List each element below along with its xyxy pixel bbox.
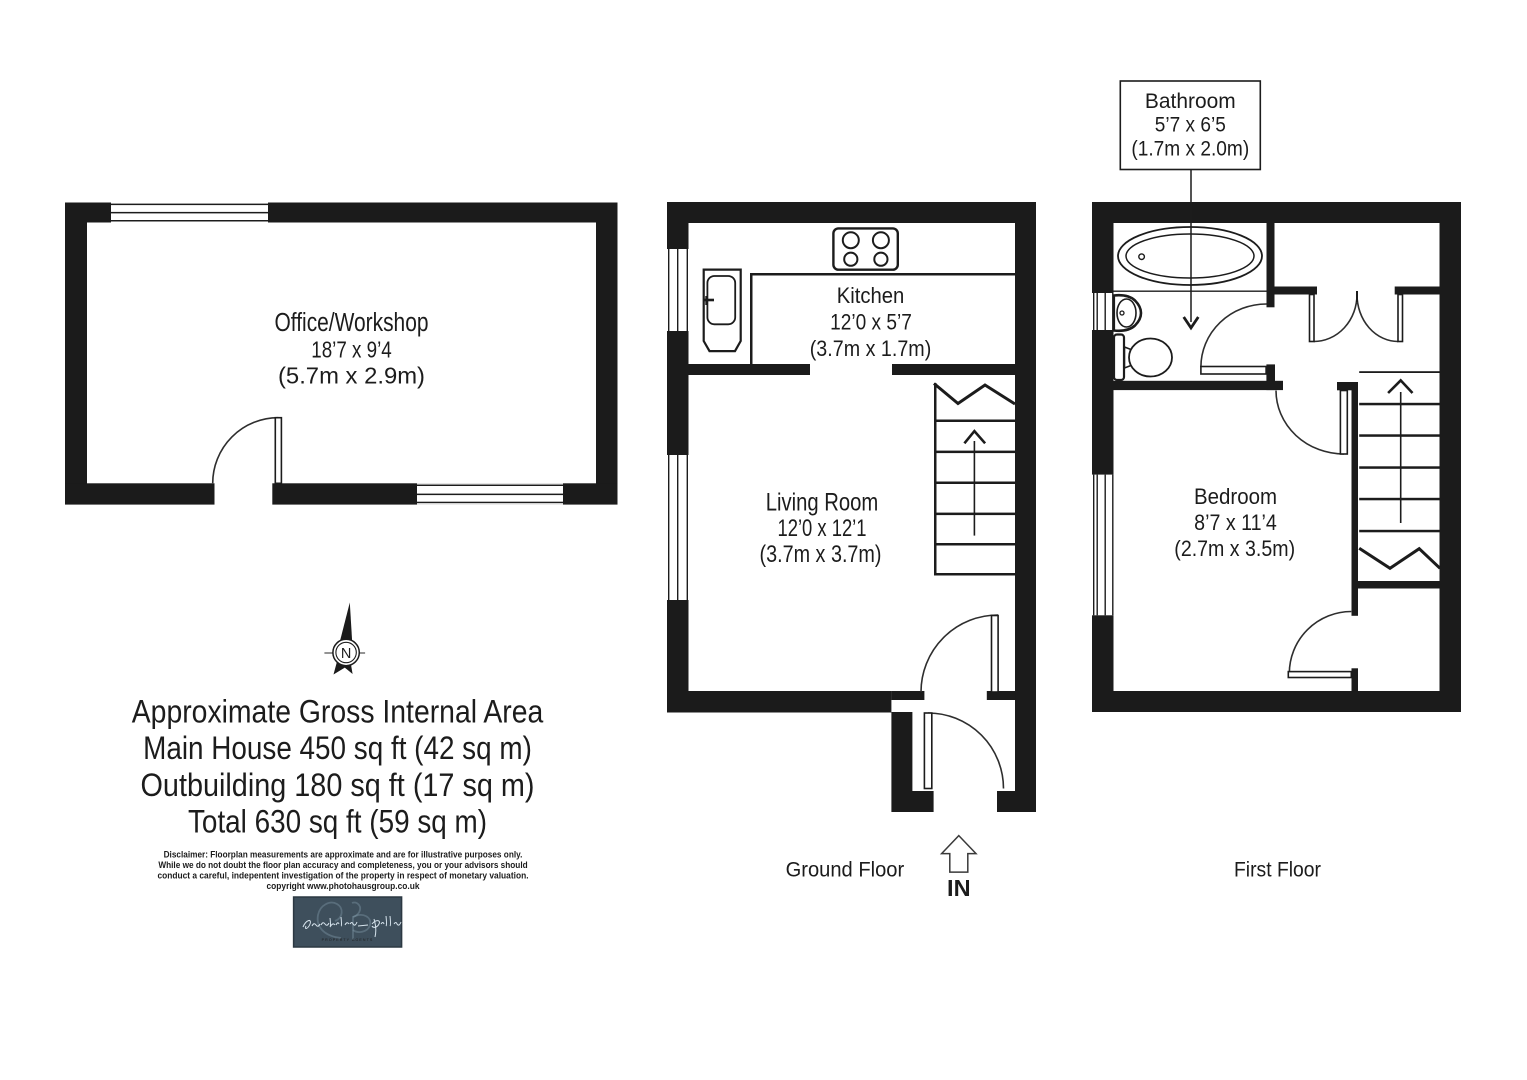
svg-text:N: N bbox=[341, 646, 351, 662]
svg-text:While we do not doubt the floo: While we do not doubt the floor plan acc… bbox=[158, 860, 527, 871]
svg-text:(2.7m x 3.5m): (2.7m x 3.5m) bbox=[1174, 536, 1295, 561]
svg-text:Kitchen: Kitchen bbox=[837, 283, 905, 308]
svg-text:IN: IN bbox=[947, 875, 971, 901]
svg-text:Bathroom: Bathroom bbox=[1145, 90, 1236, 113]
svg-text:12’0 x 12’1: 12’0 x 12’1 bbox=[778, 515, 867, 542]
svg-text:Living Room: Living Room bbox=[766, 488, 879, 516]
svg-text:(1.7m x 2.0m): (1.7m x 2.0m) bbox=[1131, 138, 1249, 161]
svg-text:Approximate Gross Internal Are: Approximate Gross Internal Area bbox=[132, 694, 544, 730]
svg-text:conduct a careful, indepentent: conduct a careful, indepentent investiga… bbox=[157, 870, 528, 881]
svg-text:(3.7m x 1.7m): (3.7m x 1.7m) bbox=[810, 336, 932, 361]
svg-text:PROPERTY AGENTS: PROPERTY AGENTS bbox=[322, 938, 374, 942]
svg-text:12’0 x 5’7: 12’0 x 5’7 bbox=[830, 310, 912, 335]
svg-text:Bedroom: Bedroom bbox=[1194, 484, 1277, 509]
svg-text:Ground Floor: Ground Floor bbox=[786, 859, 905, 882]
svg-text:(5.7m x 2.9m): (5.7m x 2.9m) bbox=[278, 363, 425, 389]
svg-text:First Floor: First Floor bbox=[1234, 859, 1321, 882]
svg-text:Total 630 sq ft (59 sq m): Total 630 sq ft (59 sq m) bbox=[188, 804, 487, 840]
svg-text:Outbuilding 180 sq ft (17 sq m: Outbuilding 180 sq ft (17 sq m) bbox=[141, 767, 535, 803]
svg-text:8’7 x 11’4: 8’7 x 11’4 bbox=[1194, 510, 1277, 535]
svg-text:Main House 450 sq ft (42 sq m): Main House 450 sq ft (42 sq m) bbox=[143, 730, 532, 766]
svg-text:Disclaimer: Floorplan measurem: Disclaimer: Floorplan measurements are a… bbox=[164, 849, 523, 860]
svg-text:copyright www.photohausgroup.c: copyright www.photohausgroup.co.uk bbox=[267, 881, 421, 892]
svg-text:Office/Workshop: Office/Workshop bbox=[275, 309, 429, 337]
svg-text:18’7 x 9’4: 18’7 x 9’4 bbox=[311, 337, 392, 363]
svg-text:5’7 x 6’5: 5’7 x 6’5 bbox=[1155, 114, 1226, 137]
svg-text:(3.7m x 3.7m): (3.7m x 3.7m) bbox=[760, 541, 882, 568]
